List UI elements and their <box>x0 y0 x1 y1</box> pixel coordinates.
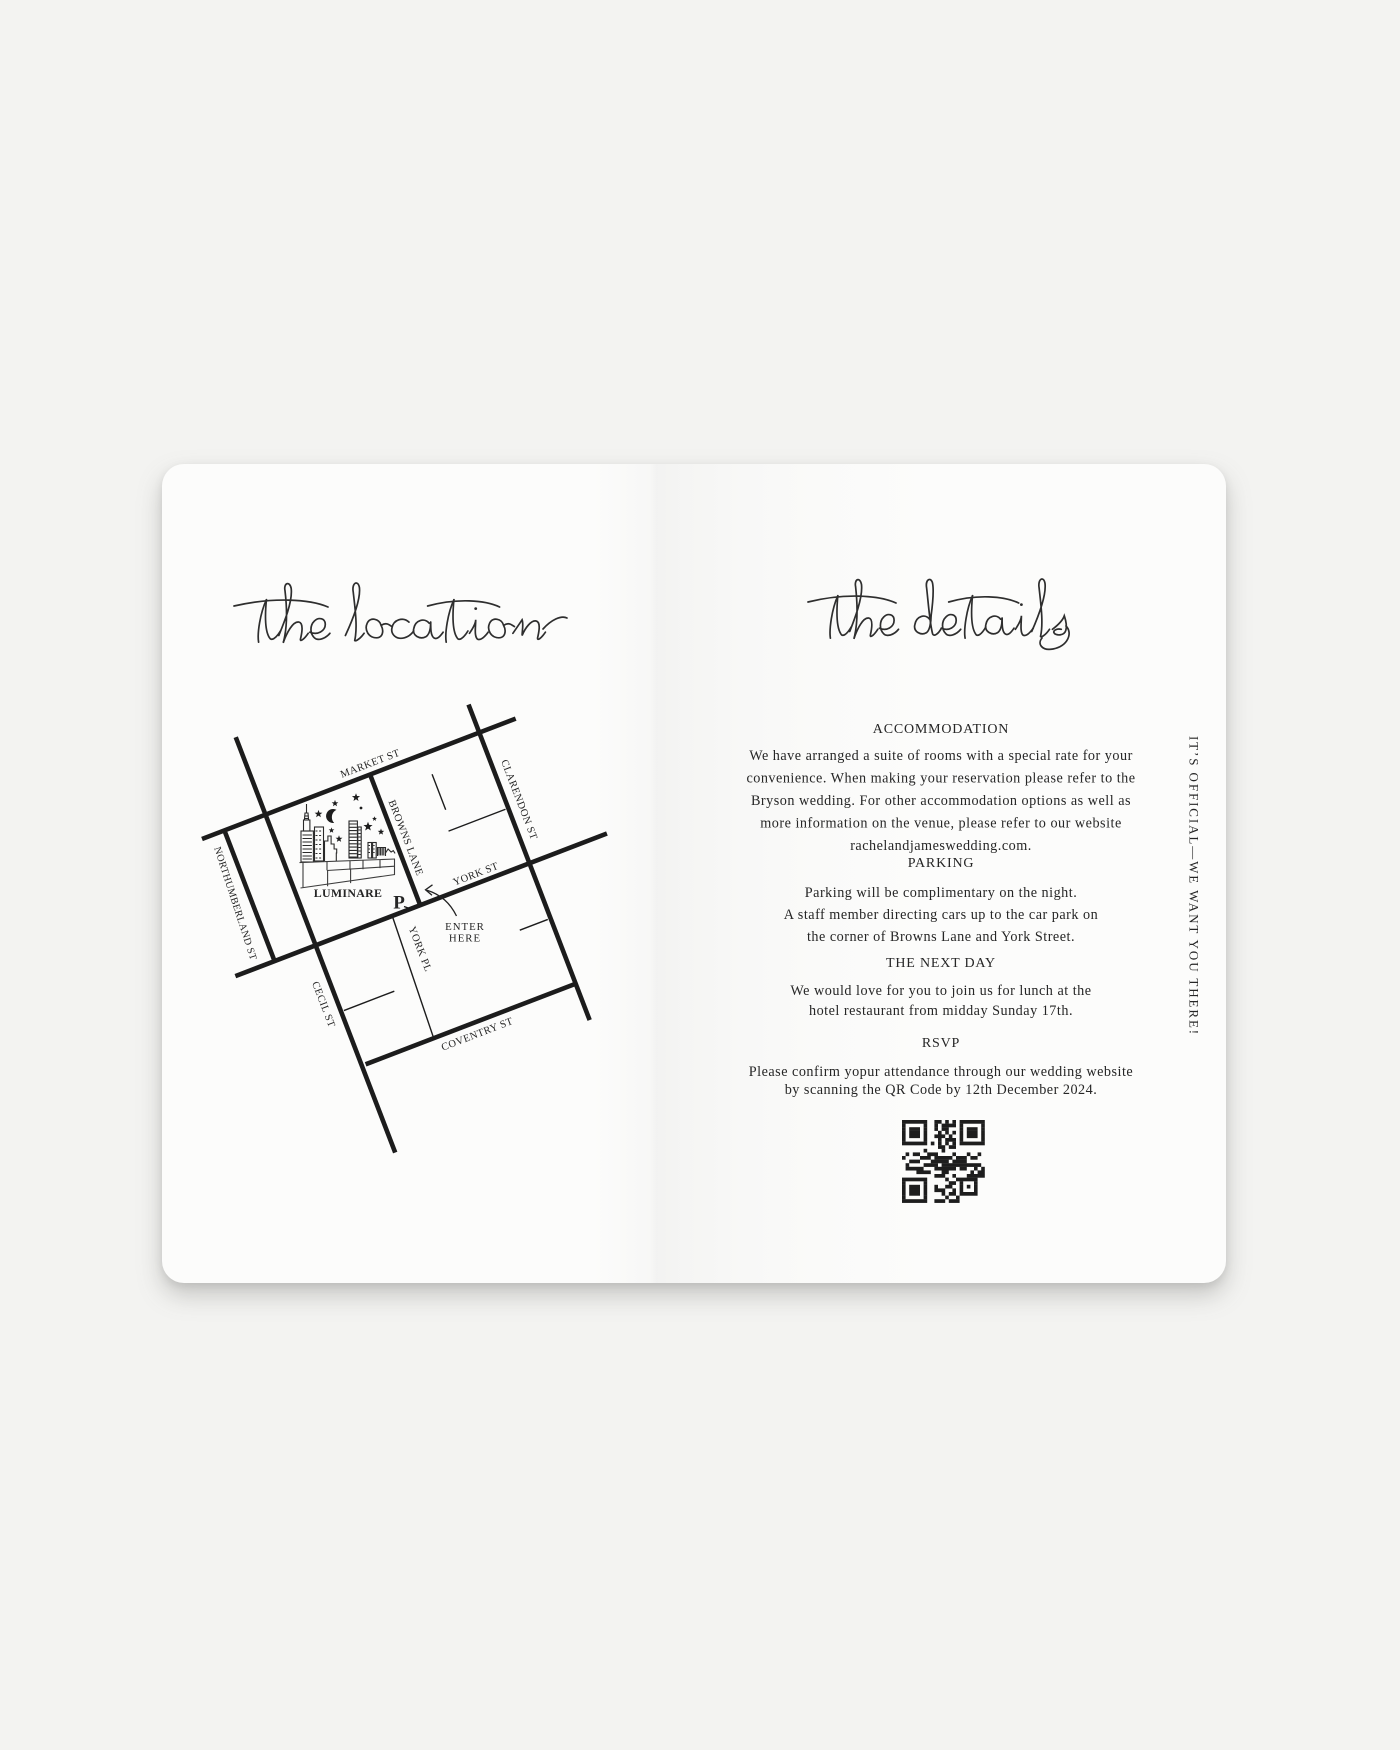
svg-text:more information on the venue,: more information on the venue, please re… <box>760 816 1122 832</box>
svg-text:convenience. When making your: convenience. When making your reservatio… <box>746 771 1135 787</box>
svg-text:Parking will be complimentary: Parking will be complimentary on the nig… <box>805 885 1078 901</box>
svg-text:We would love for you to join: We would love for you to join us for lun… <box>790 983 1091 999</box>
svg-text:HERE: HERE <box>449 933 481 945</box>
svg-text:We have arranged a suite of ro: We have arranged a suite of rooms with a… <box>749 748 1133 764</box>
svg-text:LUMINARE: LUMINARE <box>314 886 382 900</box>
svg-text:Bryson wedding. For other acco: Bryson wedding. For other accommodation … <box>751 793 1131 809</box>
svg-text:hotel restaurant from midday S: hotel restaurant from midday Sunday 17th… <box>809 1003 1073 1019</box>
svg-text:RSVP: RSVP <box>922 1036 960 1051</box>
svg-text:the corner of Browns Lane and: the corner of Browns Lane and York Stree… <box>807 929 1075 945</box>
svg-text:P: P <box>393 893 405 914</box>
svg-text:Please confirm yopur attendanc: Please confirm yopur attendance through … <box>749 1064 1133 1080</box>
svg-text:rachelandjameswedding.com.: rachelandjameswedding.com. <box>850 838 1032 854</box>
svg-text:PARKING: PARKING <box>908 856 975 871</box>
svg-text:ACCOMMODATION: ACCOMMODATION <box>873 722 1009 737</box>
svg-text:ENTER: ENTER <box>445 921 485 933</box>
svg-text:by scanning the QR Code by 12t: by scanning the QR Code by 12th December… <box>785 1082 1098 1098</box>
svg-text:A staff member directing cars: A staff member directing cars up to the … <box>784 907 1098 923</box>
svg-text:IT’S OFFICIAL—WE WANT YOU THER: IT’S OFFICIAL—WE WANT YOU THERE! <box>1187 736 1202 1036</box>
svg-text:THE NEXT DAY: THE NEXT DAY <box>886 956 996 971</box>
